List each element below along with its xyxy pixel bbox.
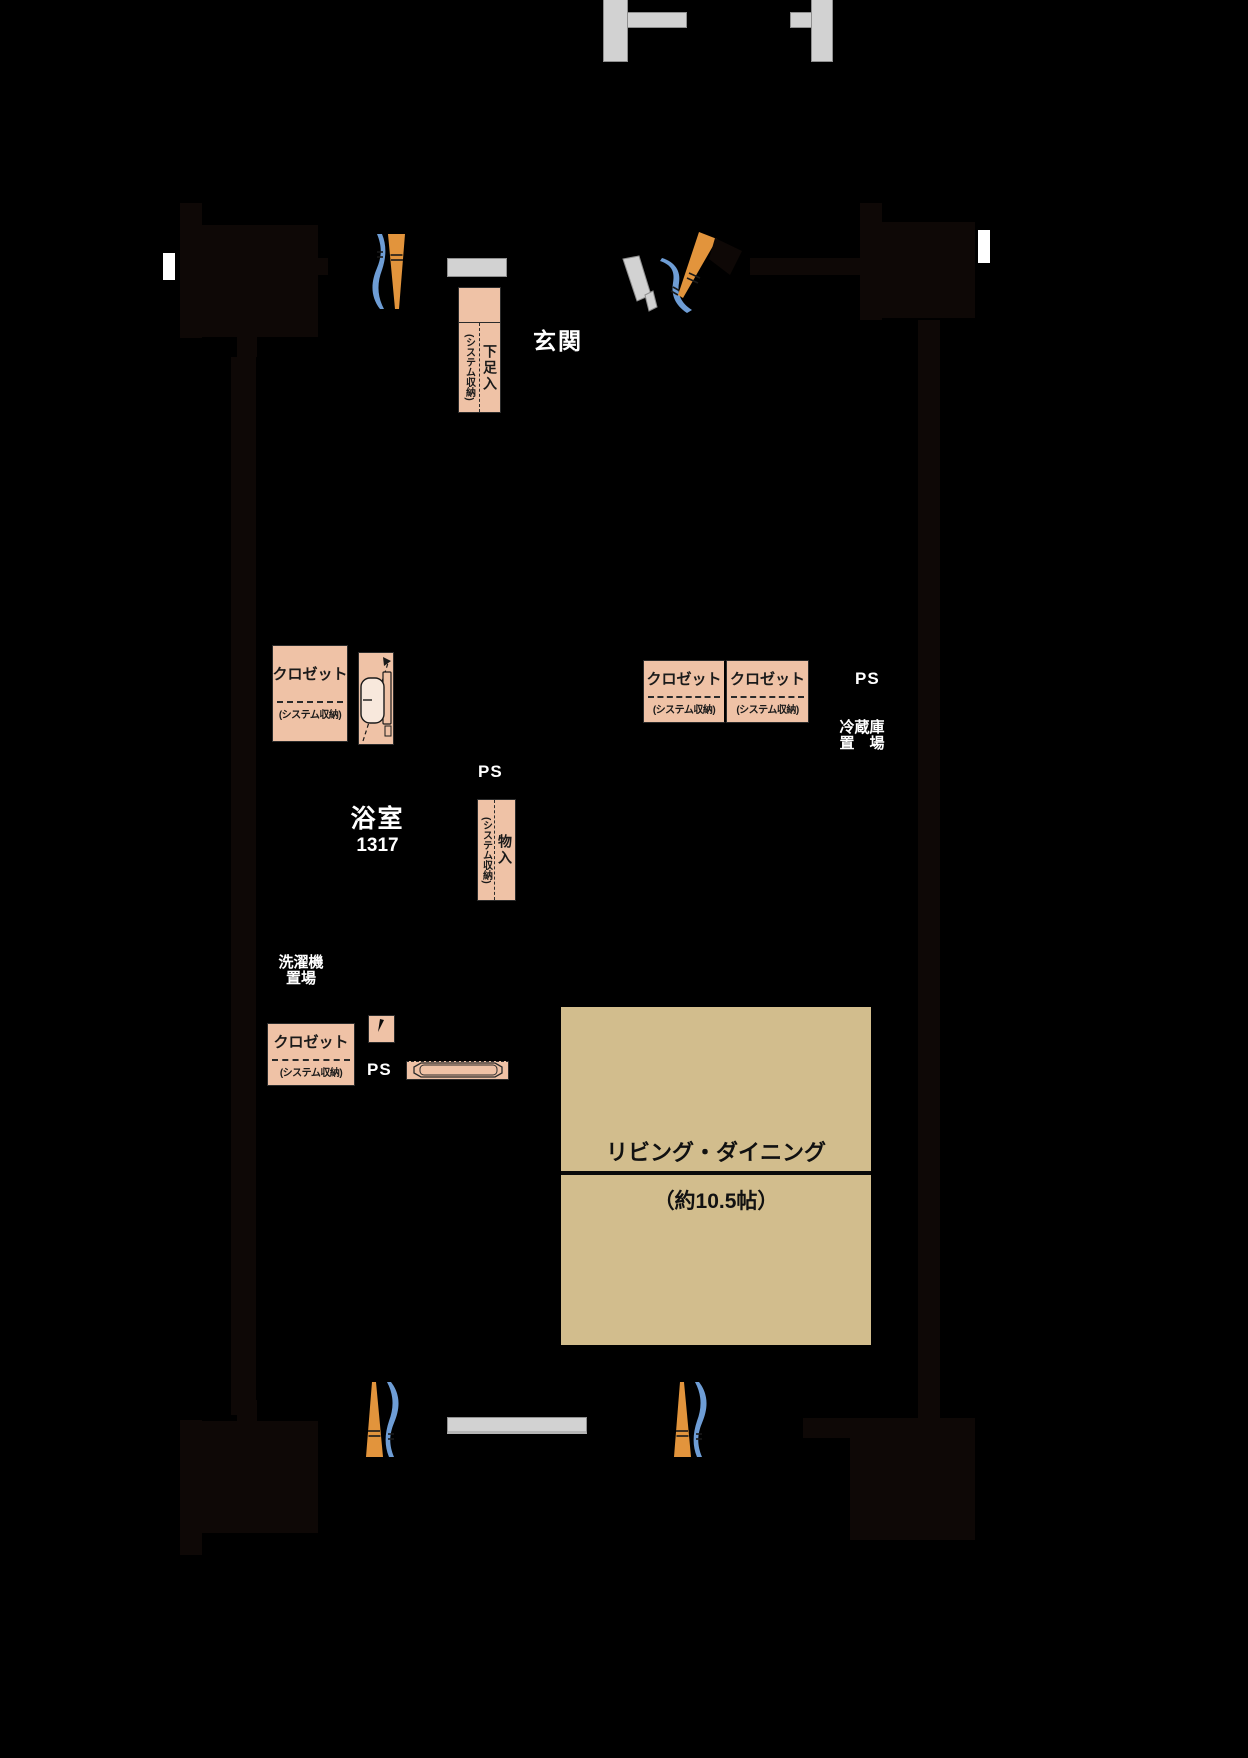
shoe-storage-sublabel: (システム収納): [459, 323, 480, 412]
closet-center-right-label: クロゼット: [727, 661, 808, 696]
wall-top-right-vbar: [860, 203, 882, 320]
wall-top-left-stub: [237, 337, 257, 357]
laundry-space-line1: 洗濯機: [272, 955, 330, 971]
closet-lower-sublabel: (システム収納): [268, 1061, 354, 1085]
closet-hall-label: クロゼット: [273, 646, 347, 701]
bathroom-label: 浴室: [330, 799, 425, 835]
curtain-icon: [671, 1381, 713, 1459]
pillar-top-center-vertical: [603, 0, 628, 62]
misc-storage-box: (システム収納) 物入: [477, 799, 516, 901]
living-dining-label: リビング・ダイニング: [561, 1135, 871, 1167]
bathroom-label-group: 浴室 1317: [330, 799, 425, 857]
misc-storage-label: 物入: [495, 800, 515, 900]
ps-hall-label: PS: [478, 762, 503, 782]
entrance-door-icon: [615, 225, 745, 320]
floor-plan: (システム収納) 下足入 玄関 クロゼット (システム収納): [0, 0, 1248, 1758]
wall-left-column: [231, 357, 256, 1415]
closet-hall-sublabel: (システム収納): [273, 703, 347, 741]
wall-right-column: [918, 320, 940, 1418]
closet-center-left: クロゼット (システム収納): [643, 660, 726, 723]
closet-center-left-label: クロゼット: [644, 661, 724, 696]
closet-center-right-sublabel: (システム収納): [727, 698, 808, 722]
kitchen-sink-icon: [407, 1062, 508, 1078]
shaft-box: [368, 1015, 395, 1043]
balcony-step: [447, 1417, 587, 1434]
ps-lower-label: PS: [367, 1060, 392, 1080]
wall-bottom-right-block: [850, 1438, 975, 1540]
wall-top-right-block: [882, 222, 975, 318]
pillar-top-right-vertical: [811, 0, 833, 62]
laundry-space-line2: 置場: [272, 971, 330, 987]
closet-center-pair: クロゼット (システム収納) クロゼット (システム収納): [643, 660, 809, 723]
closet-lower: クロゼット (システム収納): [267, 1023, 355, 1086]
shoe-storage-top: [459, 288, 500, 323]
shaft-mark-icon: [369, 1016, 394, 1042]
curtain-icon: [363, 1381, 405, 1459]
wall-top-right-hbar: [750, 258, 860, 275]
wall-top-left-block: [202, 225, 318, 337]
shoe-storage-label: 下足入: [480, 323, 500, 412]
curtain-icon: [366, 232, 408, 310]
shoe-storage-box: (システム収納) 下足入: [458, 287, 501, 413]
entry-step: [447, 258, 507, 277]
fridge-space-line2: 置 場: [833, 736, 891, 752]
kitchen-counter: [406, 1061, 509, 1080]
closet-center-right: クロゼット (システム収納): [726, 660, 809, 723]
wall-top-left-tab: [318, 258, 328, 275]
fridge-space-label: 冷蔵庫 置 場: [833, 720, 891, 752]
wall-bottom-left-bar: [180, 1420, 202, 1555]
wall-tick-right: [978, 230, 990, 263]
closet-lower-label: クロゼット: [268, 1024, 354, 1059]
closet-center-left-sublabel: (システム収納): [644, 698, 724, 722]
entrance-label: 玄関: [533, 322, 583, 356]
pillar-top-center-arm: [627, 12, 687, 28]
living-dining-room: リビング・ダイニング （約10.5帖）: [561, 1007, 871, 1345]
misc-storage-sublabel: (システム収納): [478, 800, 495, 900]
fridge-space-line1: 冷蔵庫: [833, 720, 891, 736]
living-dining-wall-line: [561, 1171, 871, 1175]
wall-bottom-left-block: [202, 1421, 318, 1533]
wall-tick-left: [163, 253, 175, 280]
wall-bottom-right-step: [803, 1418, 975, 1438]
toilet-icon: [359, 653, 393, 744]
pillar-top-right-tab: [790, 12, 812, 28]
toilet-room: [358, 652, 394, 745]
bathroom-size-label: 1317: [330, 835, 425, 857]
living-dining-size-label: （約10.5帖）: [561, 1185, 871, 1215]
ps-right-label: PS: [855, 669, 880, 689]
wall-top-left-bar: [180, 203, 202, 338]
wall-bottom-left-stub: [237, 1400, 257, 1421]
laundry-space-label: 洗濯機 置場: [272, 955, 330, 987]
closet-hall: クロゼット (システム収納): [272, 645, 348, 742]
